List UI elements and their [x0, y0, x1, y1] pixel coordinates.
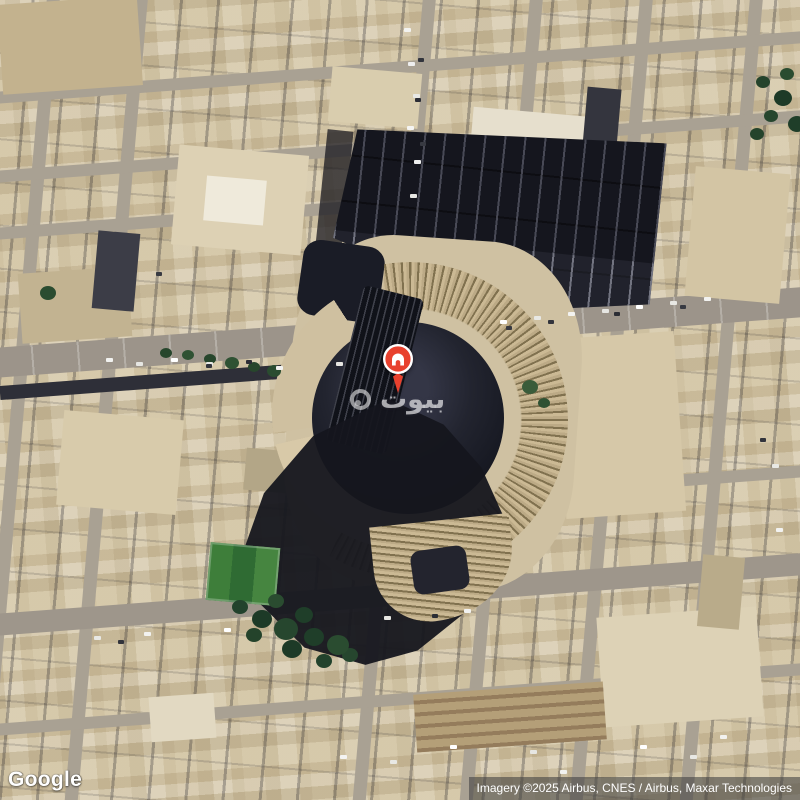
south-wing-dark-roof: [409, 544, 471, 595]
tree-cluster-south: [232, 600, 248, 614]
building-block: [56, 410, 184, 515]
building-block: [203, 175, 267, 225]
house-door: [396, 360, 401, 365]
sports-field: [206, 542, 281, 606]
bayut-logo-icon: [350, 389, 371, 410]
satellite-map-canvas[interactable]: بيوت Google Imagery ©2025 Airbus, CNES /…: [0, 0, 800, 800]
pin-stem: [393, 373, 403, 393]
vehicles-dark: [418, 58, 424, 62]
location-pin[interactable]: [381, 343, 415, 395]
building-block: [0, 0, 143, 95]
building-block: [328, 66, 422, 129]
tree-row-main-road: [182, 350, 194, 360]
imagery-attribution: Imagery ©2025 Airbus, CNES / Airbus, Max…: [469, 777, 800, 800]
building-block: [149, 693, 217, 742]
google-logo[interactable]: Google: [8, 768, 82, 792]
warehouse-rows: [413, 681, 607, 752]
facade-shade-strip: [0, 364, 300, 400]
building-block: [697, 554, 745, 629]
tree-cluster-northeast: [756, 76, 770, 88]
dark-roof: [92, 230, 141, 311]
vehicles-light: [404, 28, 411, 32]
building-block: [685, 166, 791, 304]
